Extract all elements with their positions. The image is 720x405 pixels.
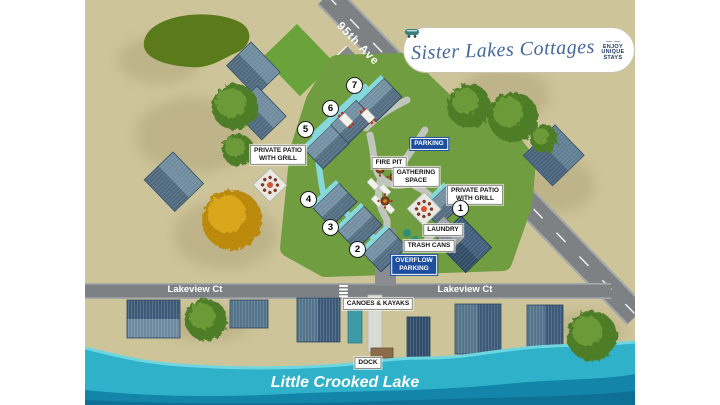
site-map-page: 95th Ave Lakeview Ct Lakeview Ct PRIVATE…	[0, 0, 720, 405]
lake-name: Little Crooked Lake	[235, 374, 455, 392]
cottage-marker-4: 4	[300, 191, 317, 208]
label-laundry: LAUNDRY	[423, 224, 463, 236]
brand-title: Sister Lakes Cottages	[411, 35, 596, 64]
label-patio-left: PRIVATE PATIO WITH GRILL	[250, 145, 306, 165]
label-trash-cans: TRASH CANS	[404, 240, 455, 252]
label-canoes-kayaks: CANOES & KAYAKS	[343, 298, 413, 310]
camper-icon	[404, 28, 420, 38]
label-overflow-parking: OVERFLOW PARKING	[391, 255, 437, 275]
cottage-marker-1: 1	[452, 200, 469, 217]
cottage-marker-5: 5	[297, 121, 314, 138]
canoe-rack-icon	[348, 310, 362, 343]
road-label-lakeview-left: Lakeview Ct	[155, 284, 235, 295]
road-label-lakeview-right: Lakeview Ct	[425, 284, 505, 295]
cottage-marker-3: 3	[322, 219, 339, 236]
sister-lakes-map: 95th Ave Lakeview Ct Lakeview Ct PRIVATE…	[85, 0, 635, 405]
cottage-marker-2: 2	[349, 241, 366, 258]
label-dock: DOCK	[354, 357, 381, 369]
label-parking: PARKING	[410, 138, 448, 150]
label-gathering-space: GATHERING SPACE	[393, 167, 440, 187]
cottage-marker-6: 6	[322, 100, 339, 117]
cottage-marker-7: 7	[346, 77, 363, 94]
brand-badge: — — ENJOY UNIQUE STAYS	[601, 39, 624, 62]
brand-logo: Sister Lakes Cottages — — ENJOY UNIQUE S…	[403, 27, 635, 73]
